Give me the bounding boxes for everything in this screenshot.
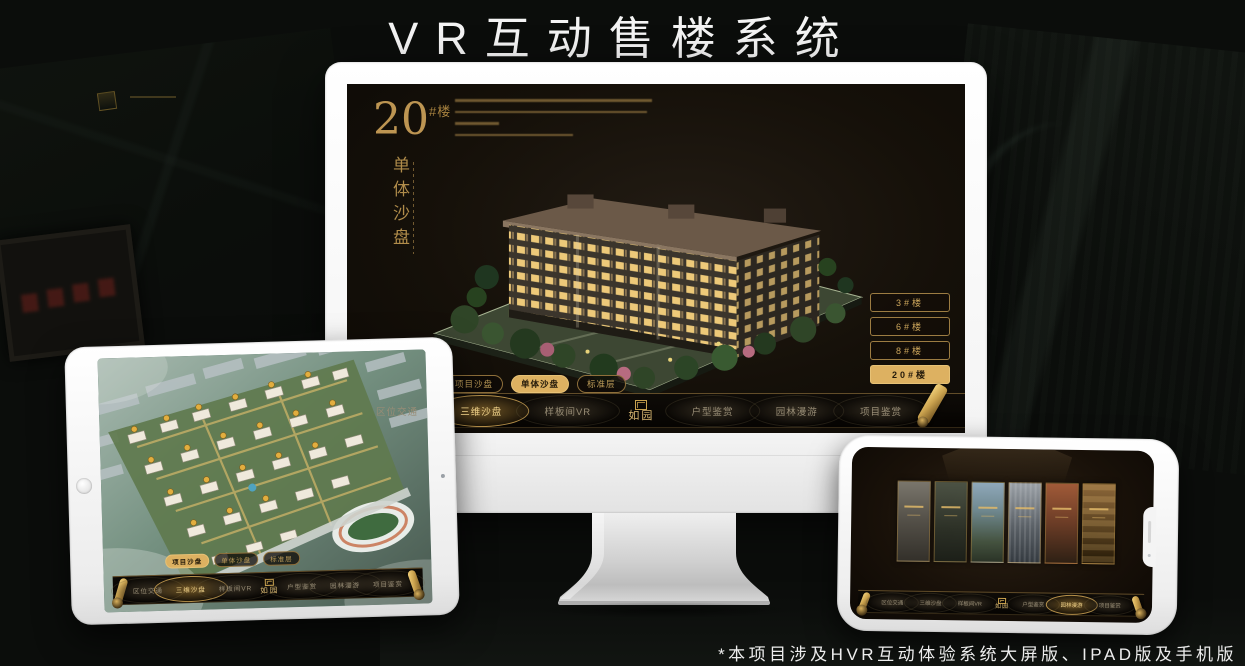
scene-card[interactable]: [1008, 482, 1042, 563]
nav-item-showroom-vr[interactable]: 样板间VR: [214, 579, 258, 596]
sub-tab-project[interactable]: 项目沙盘: [165, 554, 209, 569]
seal-icon: [998, 597, 1006, 603]
background-map-text: [130, 96, 176, 98]
floor-button-selected[interactable]: 20#楼: [870, 365, 950, 384]
nav-item-sandtable[interactable]: 三维沙盘: [455, 401, 507, 421]
nav-item-sandtable[interactable]: 三维沙盘: [916, 596, 944, 608]
monitor-stand: [556, 513, 772, 609]
page-title: VR互动售楼系统: [0, 2, 1245, 67]
nav-item-unit-plans[interactable]: 户型鉴赏: [687, 401, 739, 421]
building-number-suffix: #楼: [429, 104, 451, 119]
description-text-line: [455, 122, 499, 125]
nav-item-showroom-vr[interactable]: 样板间VR: [539, 401, 596, 421]
sub-tab-single[interactable]: 单体沙盘: [511, 375, 569, 393]
sub-tab-floorplan[interactable]: 标准层: [263, 551, 300, 566]
sub-tab-single[interactable]: 单体沙盘: [214, 552, 258, 567]
nav-item-location[interactable]: 区位交通: [878, 596, 906, 608]
tablet-camera-icon: [441, 474, 445, 478]
poster-stage: VR互动售楼系统 20#楼 单体沙盘: [0, 0, 1245, 666]
tablet-device: 项目沙盘 单体沙盘 标准层 区位交通 三维沙盘 样板间VR 如园 户型鉴赏 园林…: [64, 337, 460, 626]
footnote-text: *本项目涉及HVR互动体验系统大屏版、IPAD版及手机版: [718, 640, 1237, 665]
sub-tab-floorplan[interactable]: 标准层: [577, 375, 626, 393]
floor-button-group: 3#楼 6#楼 8#楼 20#楼: [870, 293, 950, 389]
sub-tab-project[interactable]: 项目沙盘: [445, 375, 503, 393]
floor-button[interactable]: 6#楼: [870, 317, 950, 336]
scene-card[interactable]: [971, 481, 1005, 562]
scene-card-gallery: [897, 480, 1116, 564]
building-model-3d[interactable]: [413, 136, 883, 398]
phone-screen-ui: 区位交通 三维沙盘 样板间VR 如园 户型鉴赏 园林漫游 项目鉴赏: [850, 447, 1154, 623]
floor-button[interactable]: 8#楼: [870, 341, 950, 360]
nav-item-project-gallery[interactable]: 项目鉴赏: [855, 401, 907, 421]
background-map-left: [0, 28, 367, 372]
nav-item-unit-plans[interactable]: 户型鉴赏: [1019, 598, 1047, 610]
nav-item-showroom-vr[interactable]: 样板间VR: [955, 597, 985, 609]
scene-card[interactable]: [1045, 483, 1079, 564]
phone-nav-bar: 区位交通 三维沙盘 样板间VR 如园 户型鉴赏 园林漫游 项目鉴赏: [858, 590, 1144, 617]
phone-notch: [1143, 507, 1157, 567]
brand-logo: 如园: [260, 578, 279, 594]
seal-icon: [265, 578, 274, 585]
tablet-screen-ui: 项目沙盘 单体沙盘 标准层 区位交通 三维沙盘 样板间VR 如园 户型鉴赏 园林…: [98, 349, 433, 612]
seal-icon: [635, 400, 647, 410]
description-text-line: [455, 111, 647, 114]
scene-card[interactable]: [934, 481, 968, 562]
phone-device: 区位交通 三维沙盘 样板间VR 如园 户型鉴赏 园林漫游 项目鉴赏: [837, 435, 1180, 636]
brand-logo: 如园: [995, 597, 1009, 609]
building-subtitle-vertical: 单体沙盘: [387, 156, 412, 252]
background-map-logo: [97, 91, 117, 111]
scene-card[interactable]: [1082, 483, 1116, 564]
sub-tab-group: 项目沙盘 单体沙盘 标准层: [445, 375, 626, 393]
description-text-line: [455, 99, 652, 102]
scene-card[interactable]: [897, 480, 931, 561]
background-plaque: [0, 224, 145, 362]
nav-item-garden-tour[interactable]: 园林漫游: [1057, 598, 1085, 610]
floor-button[interactable]: 3#楼: [870, 293, 950, 312]
monitor-stand-shadow: [535, 602, 795, 618]
nav-item-garden-tour[interactable]: 园林漫游: [771, 401, 823, 421]
brand-logo: 如园: [628, 400, 654, 422]
nav-item-project-gallery[interactable]: 项目鉴赏: [368, 574, 408, 591]
scroll-icon[interactable]: [1131, 595, 1144, 615]
nav-item-project-gallery[interactable]: 项目鉴赏: [1096, 599, 1124, 611]
